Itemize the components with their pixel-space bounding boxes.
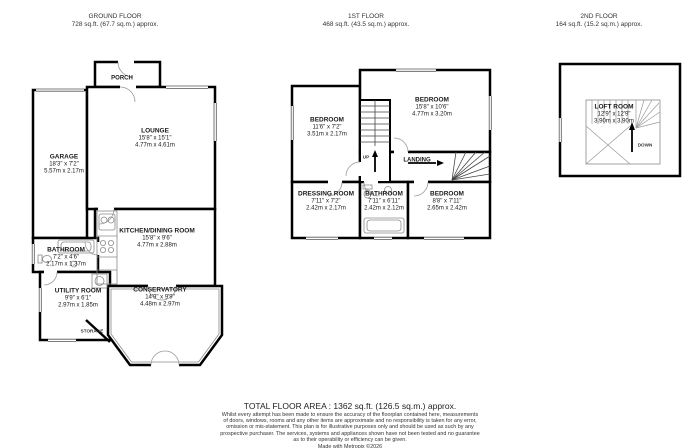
down-label: DOWN [638, 143, 653, 148]
bathroom-gf-label: BATHROOM 7'2" x 4'6" 2.17m x 1.37m [46, 246, 86, 268]
landing-label: LANDING [403, 158, 430, 165]
loft-label: LOFT ROOM 12'9" x 12'9" 3.90m x 3.90m [594, 103, 634, 125]
bedroom2-label: BEDROOM 15'8" x 10'6" 4.77m x 3.20m [412, 96, 452, 118]
first-floor-walls [292, 70, 490, 238]
bathroom-ff-label: BATHROOM 7'11" x 6'11" 2.42m x 2.12m [364, 190, 404, 212]
kitchen-label: KITCHEN/DINING ROOM 15'8" x 9'6" 4.77m x… [119, 227, 194, 249]
total-floor-area: TOTAL FLOOR AREA : 1362 sq.ft. (126.5 sq… [244, 401, 456, 411]
second-floor-title: 2ND FLOOR [556, 13, 643, 21]
floorplan-page: GROUND FLOOR 728 sq.ft. (67.7 sq.m.) app… [0, 0, 700, 448]
ground-floor-plan [30, 58, 230, 370]
bedroom3-label: BEDROOM 8'8" x 7'11" 2.65m x 2.42m [427, 190, 467, 212]
storage-label: STORAGE [81, 329, 104, 334]
ground-floor-header: GROUND FLOOR 728 sq.ft. (67.7 sq.m.) app… [72, 13, 159, 29]
second-floor-area: 164 sq.ft. (15.2 sq.m.) approx. [556, 21, 643, 29]
second-floor-header: 2ND FLOOR 164 sq.ft. (15.2 sq.m.) approx… [556, 13, 643, 29]
first-floor-plan [288, 66, 494, 242]
bedroom1-label: BEDROOM 11'6" x 7'2" 3.51m x 2.17m [307, 116, 347, 138]
utility-label: UTILITY ROOM 9'9" x 6'1" 2.97m x 1.85m [55, 287, 101, 309]
garage-label: GARAGE 18'3" x 7'2" 5.57m x 2.17m [44, 153, 84, 175]
conservatory-label: CONSERVATORY 14'9" x 9'9" 4.48m x 2.97m [133, 286, 186, 308]
first-floor-header: 1ST FLOOR 468 sq.ft. (43.5 sq.m.) approx… [323, 13, 410, 29]
up-label: UP [363, 155, 369, 160]
first-floor-title: 1ST FLOOR [323, 13, 410, 21]
ground-floor-walls [33, 62, 222, 365]
porch-room [95, 62, 160, 87]
disclaimer-block: Whilst every attempt has been made to en… [219, 412, 481, 448]
lounge-label: LOUNGE 15'8" x 15'1" 4.77m x 4.61m [135, 127, 175, 149]
dressing-label: DRESSING ROOM 7'11" x 7'2" 2.42m x 2.17m [298, 190, 354, 212]
ground-floor-title: GROUND FLOOR [72, 13, 159, 21]
credit-line: Made with Metropix ©2026 [219, 444, 481, 448]
porch-label: PORCH [111, 76, 133, 83]
second-floor-windows [559, 118, 562, 142]
first-floor-area: 468 sq.ft. (43.5 sq.m.) approx. [323, 21, 410, 29]
disclaimer-text: Whilst every attempt has been made to en… [220, 412, 479, 443]
ground-floor-area: 728 sq.ft. (67.7 sq.m.) approx. [72, 21, 159, 29]
